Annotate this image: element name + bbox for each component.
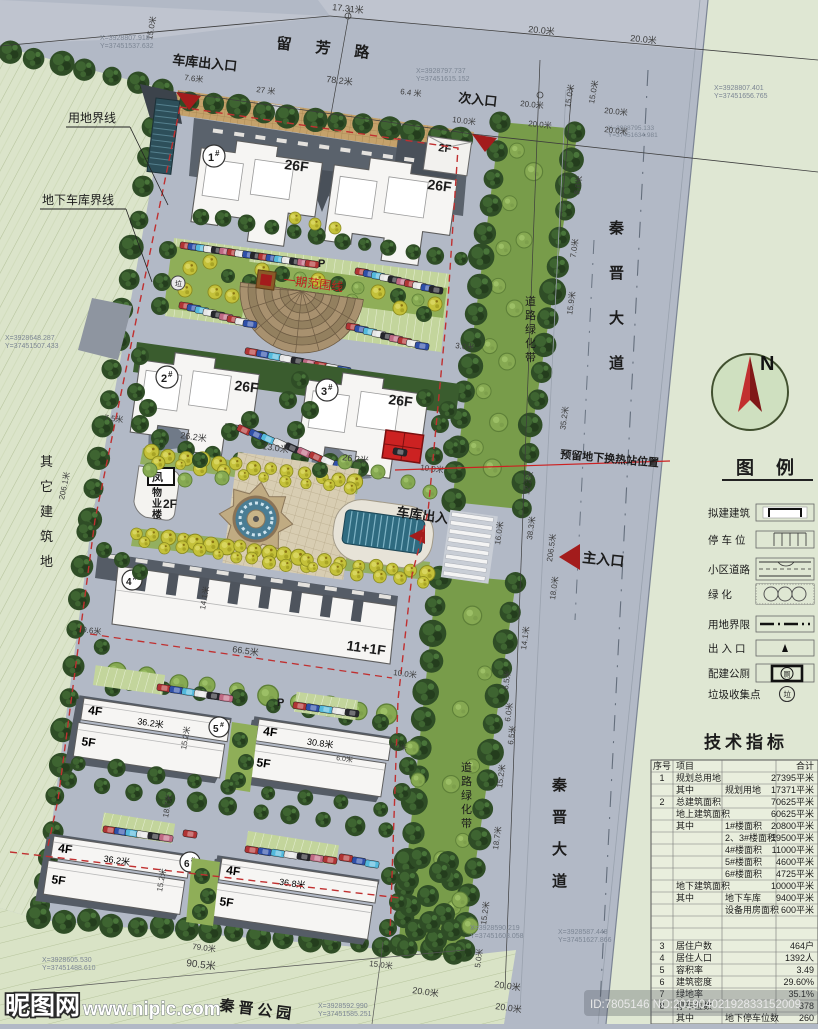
svg-text:晋: 晋 [609,265,624,282]
svg-text:#: # [168,370,173,379]
svg-text:2F: 2F [438,142,452,156]
svg-text:配建公厕: 配建公厕 [708,667,750,680]
svg-text:4F: 4F [57,841,73,857]
svg-text:建筑密度: 建筑密度 [676,976,712,987]
svg-text:总建筑面积: 总建筑面积 [676,796,721,807]
svg-text:4725平米: 4725平米 [776,868,814,879]
svg-text:昵图网: 昵图网 [5,992,80,1020]
svg-text:技术指标: 技术指标 [704,732,788,752]
svg-text:4F: 4F [262,724,278,740]
svg-text:4600平米: 4600平米 [776,856,814,867]
svg-text:小区道路: 小区道路 [708,563,750,576]
svg-text:Y=37451615.152: Y=37451615.152 [416,76,470,83]
svg-text:晋: 晋 [552,809,567,826]
svg-text:5F: 5F [81,734,97,750]
svg-text:用地界线: 用地界线 [68,111,116,125]
svg-text:4F: 4F [87,703,103,719]
svg-text:70625平米: 70625平米 [771,796,814,807]
svg-text:464户: 464户 [790,940,814,951]
svg-text:Y=37451627.866: Y=37451627.866 [558,937,612,944]
svg-text:其中: 其中 [676,784,694,795]
svg-text:其中: 其中 [676,892,694,903]
svg-text:筑: 筑 [40,529,53,544]
svg-text:10000平米: 10000平米 [771,880,814,891]
svg-text:垃: 垃 [175,279,182,288]
svg-text:Y=37451585.251: Y=37451585.251 [318,1011,372,1018]
svg-text:1: 1 [208,152,214,164]
svg-text:项目: 项目 [676,761,694,771]
svg-text:居住户数: 居住户数 [676,940,712,951]
svg-text:26F: 26F [234,377,260,396]
svg-text:2、3#楼面积: 2、3#楼面积 [725,832,776,843]
svg-text:绿: 绿 [525,322,536,336]
svg-text:道: 道 [609,354,624,372]
svg-text:绿: 绿 [461,788,472,802]
svg-text:大: 大 [552,840,567,858]
svg-text:11000平米: 11000平米 [772,844,814,855]
svg-text:3: 3 [321,386,327,398]
svg-text:合计: 合计 [796,760,814,771]
svg-text:19500平米: 19500平米 [771,832,814,843]
svg-text:5F: 5F [219,894,235,910]
svg-text:27395平米: 27395平米 [771,772,814,783]
svg-text:道: 道 [525,294,536,308]
svg-text:垃圾收集点: 垃圾收集点 [708,688,761,701]
svg-text:拟建建筑: 拟建建筑 [708,507,750,520]
svg-text:26F: 26F [427,176,453,195]
svg-text:2: 2 [161,373,167,385]
svg-text:秦: 秦 [551,776,568,794]
svg-text:用地界限: 用地界限 [708,618,750,631]
svg-text:#: # [328,383,333,392]
svg-text:地上建筑面积: 地上建筑面积 [676,808,730,819]
svg-text:建: 建 [40,504,53,519]
svg-text:Y=37451507.433: Y=37451507.433 [5,343,59,350]
svg-text:地下建筑面积: 地下建筑面积 [676,880,730,891]
svg-text:带: 带 [525,351,536,364]
svg-text:厕: 厕 [784,671,791,679]
svg-text:楼: 楼 [152,508,162,521]
svg-text:其: 其 [40,454,53,469]
svg-text:2F: 2F [163,497,177,511]
svg-text:6#楼面积: 6#楼面积 [725,868,762,879]
svg-text:ID:7805146 NO:2019040219283315: ID:7805146 NO:20190402192833152009 [590,999,801,1011]
svg-text:2: 2 [659,797,664,807]
svg-text:www.nipic.com: www.nipic.com [82,999,221,1020]
svg-text:4: 4 [126,577,132,588]
svg-text:N: N [760,353,774,375]
svg-text:5: 5 [659,965,664,975]
svg-text:26F: 26F [284,156,310,175]
svg-text:X=3928592.990: X=3928592.990 [318,1003,368,1010]
svg-text:5F: 5F [256,755,272,771]
svg-text:停车位: 停车位 [708,534,749,547]
svg-text:地: 地 [40,554,53,569]
svg-text:X=3928587.448: X=3928587.448 [558,929,608,936]
svg-text:其中: 其中 [676,820,694,831]
svg-text:路: 路 [461,775,472,788]
svg-text:路: 路 [525,309,536,322]
svg-text:4: 4 [659,953,664,963]
svg-text:规划用地: 规划用地 [725,784,761,795]
svg-text:26F: 26F [388,391,414,410]
svg-text:3.49: 3.49 [796,965,814,975]
svg-text:大: 大 [609,309,624,327]
svg-text:化: 化 [525,336,536,350]
svg-text:5: 5 [213,724,219,735]
svg-text:5#楼面积: 5#楼面积 [725,856,762,867]
svg-text:垃: 垃 [784,689,792,699]
svg-text:X=3928807.401: X=3928807.401 [714,85,764,92]
svg-text:序号: 序号 [653,760,671,771]
svg-text:容积率: 容积率 [676,964,703,975]
svg-text:Y=37451608.058: Y=37451608.058 [470,933,524,940]
svg-text:1: 1 [659,773,664,783]
svg-text:P: P [277,697,284,709]
svg-text:1392人: 1392人 [785,953,814,963]
svg-text:9400平米: 9400平米 [776,892,814,903]
svg-text:5F: 5F [51,872,67,888]
svg-text:17371平米: 17371平米 [771,784,814,795]
svg-text:居住人口: 居住人口 [676,952,712,963]
svg-text:秦: 秦 [608,219,625,237]
svg-text:X=3928590.219: X=3928590.219 [470,925,520,932]
svg-text:X=3928605.530: X=3928605.530 [42,957,92,964]
svg-text:带: 带 [461,817,472,830]
svg-text:设备用房面积: 设备用房面积 [725,904,779,915]
svg-text:1#楼面积: 1#楼面积 [725,820,762,831]
svg-text:6: 6 [184,859,190,870]
svg-text:Y=37451488.610: Y=37451488.610 [42,965,96,972]
svg-text:道: 道 [461,760,472,774]
svg-text:地下车库: 地下车库 [725,892,761,903]
svg-text:图: 图 [736,458,754,478]
svg-text:X=3928648.287: X=3928648.287 [5,335,55,342]
svg-text:道: 道 [552,872,567,890]
svg-text:600平米: 600平米 [781,904,814,915]
svg-text:X=3928797.737: X=3928797.737 [416,68,466,75]
svg-text:3: 3 [659,941,664,951]
svg-text:Y=37451656.765: Y=37451656.765 [714,93,768,100]
svg-text:例: 例 [776,457,794,478]
svg-text:它: 它 [40,479,53,494]
svg-text:化: 化 [461,802,472,816]
svg-text:Y=37451537.632: Y=37451537.632 [100,43,154,50]
svg-text:60625平米: 60625平米 [771,808,814,819]
svg-text:出入口: 出入口 [708,642,749,655]
svg-text:#: # [215,149,220,158]
svg-text:20800平米: 20800平米 [771,820,814,831]
svg-text:地下车库界线: 地下车库界线 [42,192,114,207]
svg-text:X=3928807.918: X=3928807.918 [100,35,150,42]
svg-text:4F: 4F [225,863,241,879]
svg-text:#: # [220,722,224,729]
svg-text:6: 6 [659,977,664,987]
svg-text:P: P [318,258,325,270]
svg-text:29.60%: 29.60% [783,977,814,987]
svg-text:绿 化: 绿 化 [708,588,732,601]
svg-text:业: 业 [152,497,162,510]
svg-text:规划总用地: 规划总用地 [676,772,721,783]
svg-text:物: 物 [152,486,162,499]
svg-text:4#楼面积: 4#楼面积 [725,844,762,855]
